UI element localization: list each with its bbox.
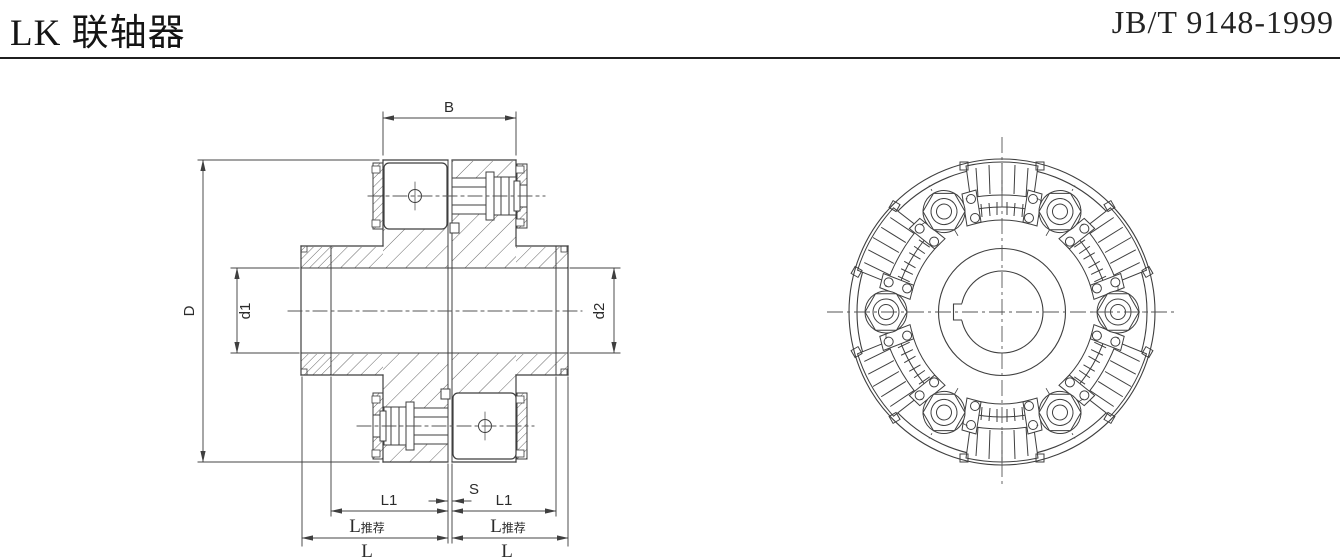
dim-label-d1: d1 <box>237 303 254 320</box>
technical-drawing: B D d1 d2 L1 L1 S L推荐 L推荐 L L <box>0 0 1340 560</box>
dim-label-l-left: L <box>361 541 373 560</box>
drawing-page: LK 联轴器 JB/T 9148-1999 <box>0 0 1340 560</box>
dim-label-d2: d2 <box>591 303 608 320</box>
dim-label-l-right: L <box>501 541 513 560</box>
dim-label-d-outer: D <box>181 305 198 316</box>
dim-label-lrec-right: L推荐 <box>490 516 526 537</box>
dim-label-s: S <box>469 481 479 498</box>
keyway <box>953 304 964 321</box>
dim-label-l1-left: L1 <box>381 492 398 509</box>
bore-lines <box>301 268 568 353</box>
dim-label-b: B <box>444 99 454 116</box>
dim-label-l1-right: L1 <box>496 492 513 509</box>
front-view <box>827 137 1177 488</box>
section-view: B D d1 d2 L1 L1 S L推荐 L推荐 L L <box>181 99 620 560</box>
dim-label-lrec-left: L推荐 <box>349 516 385 537</box>
